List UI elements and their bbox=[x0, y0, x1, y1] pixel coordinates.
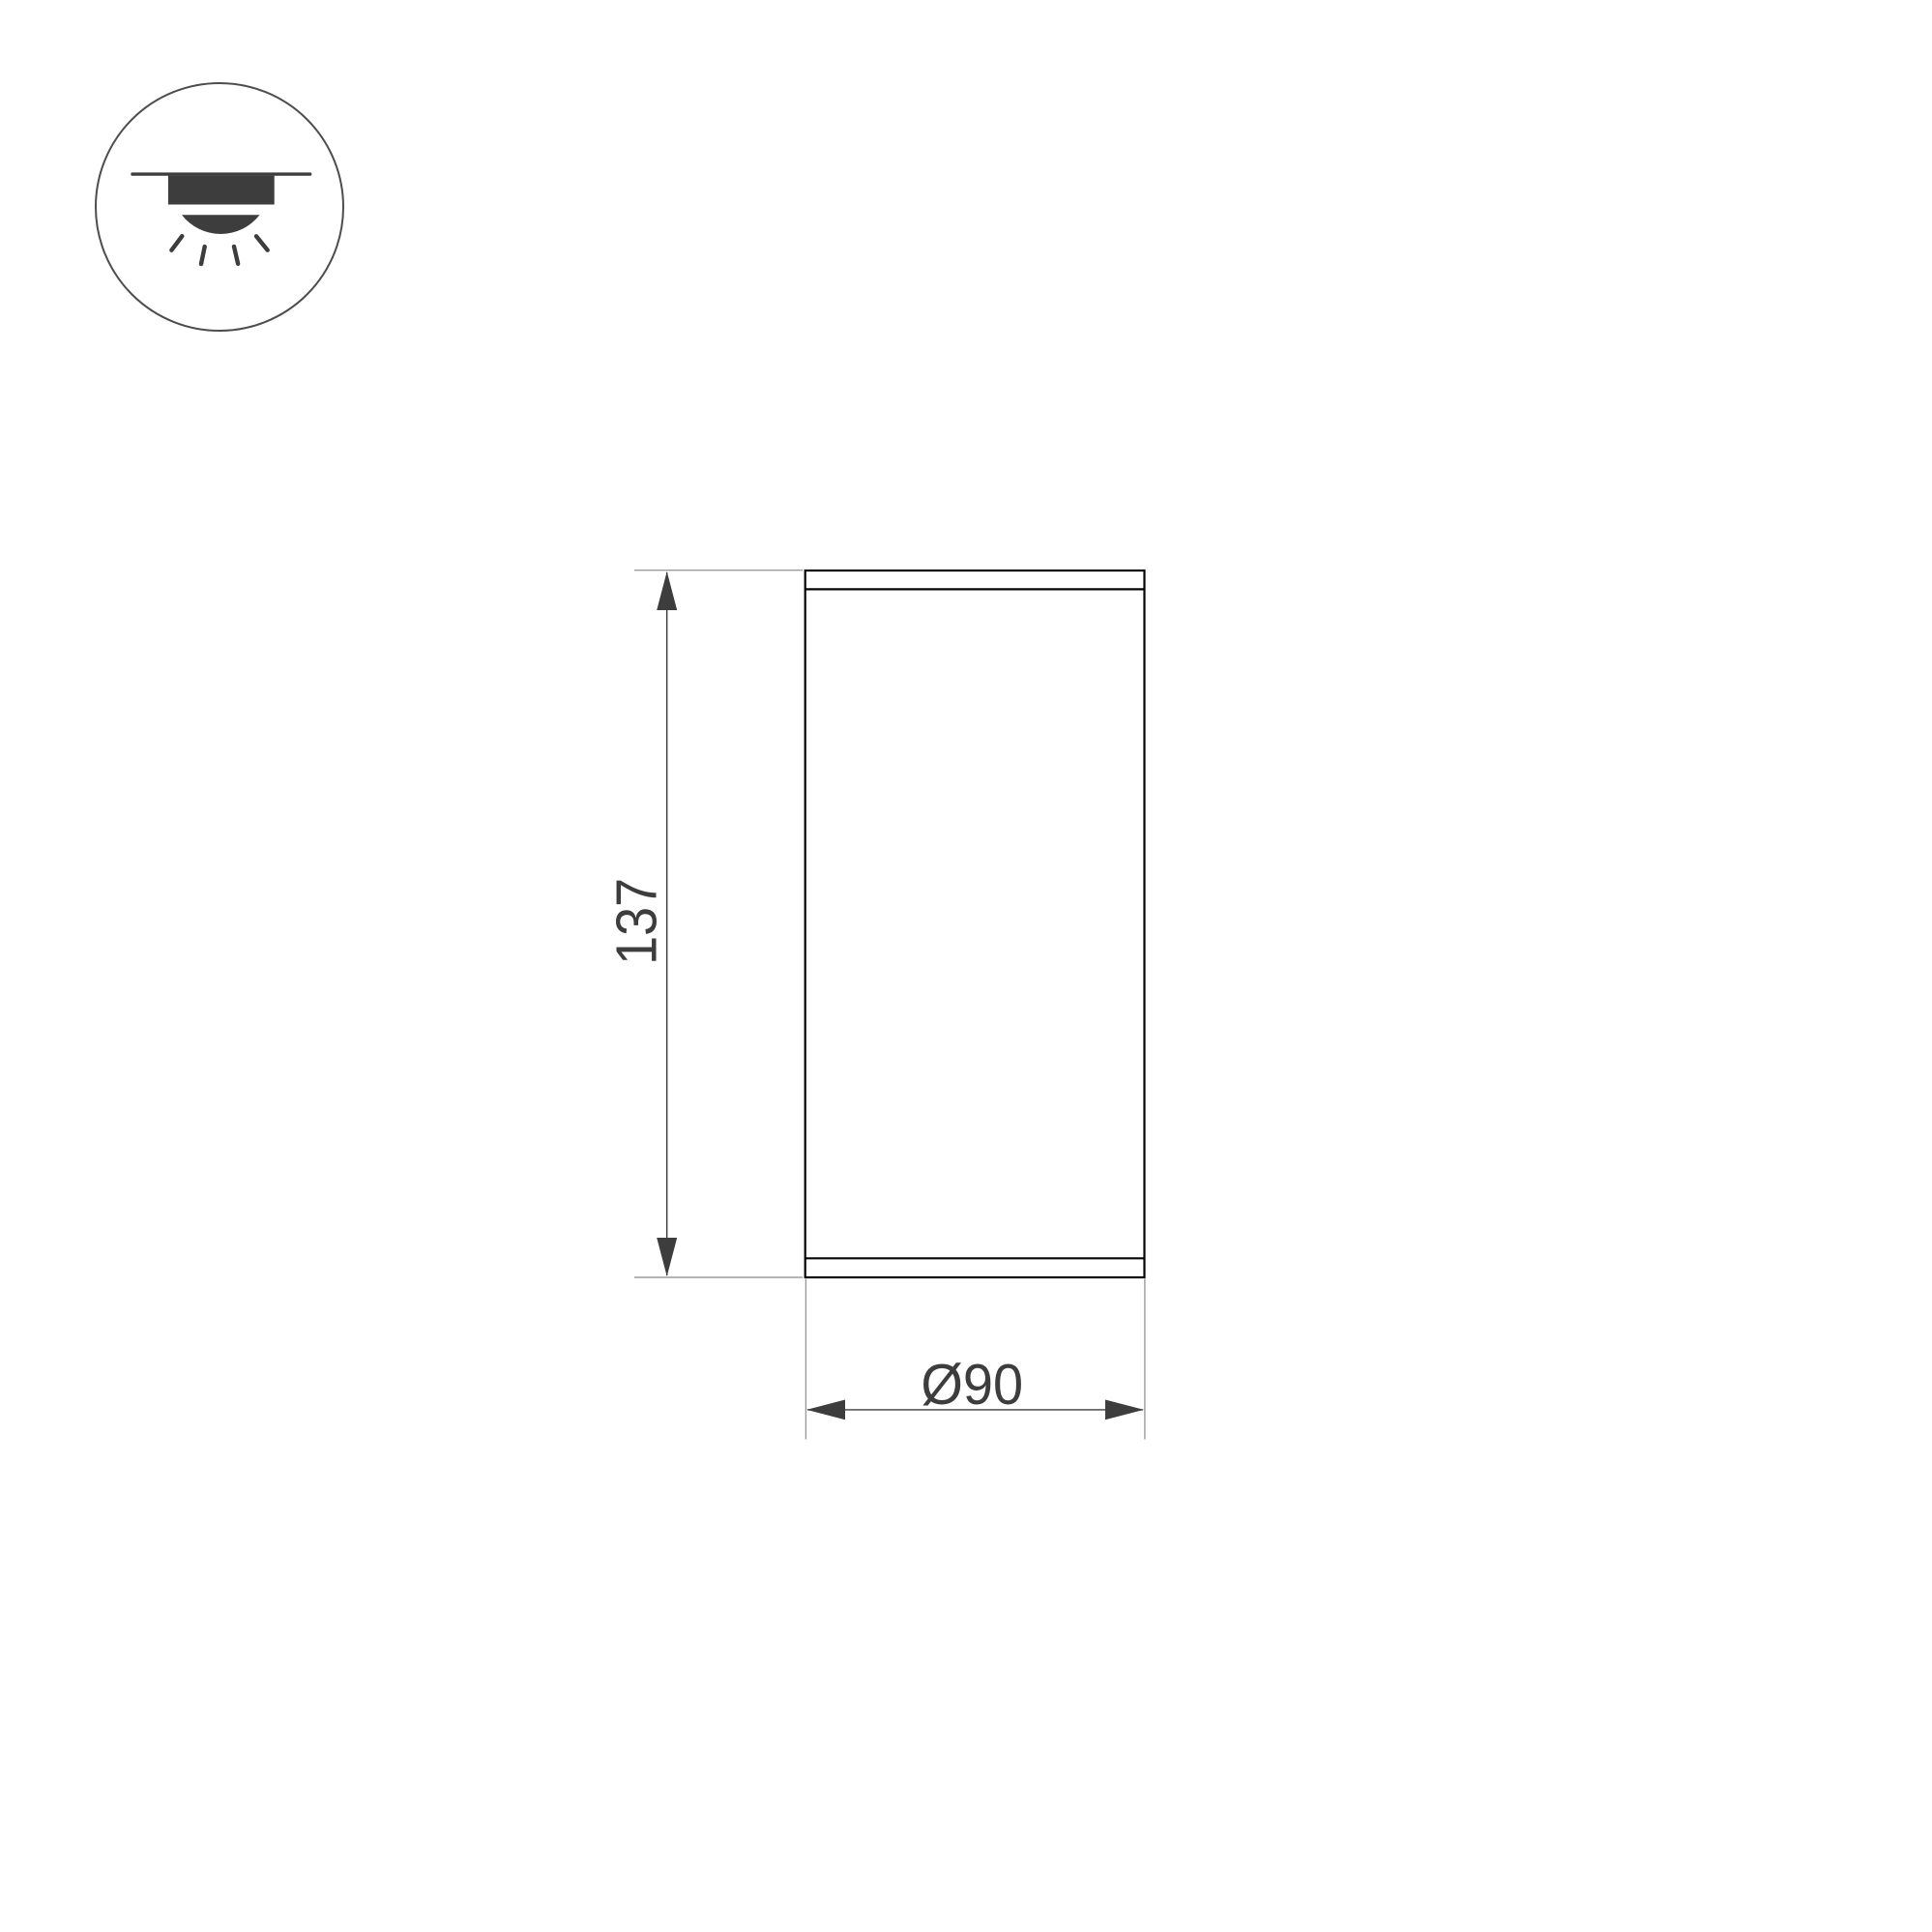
svg-text:Ø90: Ø90 bbox=[921, 1354, 1023, 1417]
svg-text:137: 137 bbox=[606, 878, 669, 965]
